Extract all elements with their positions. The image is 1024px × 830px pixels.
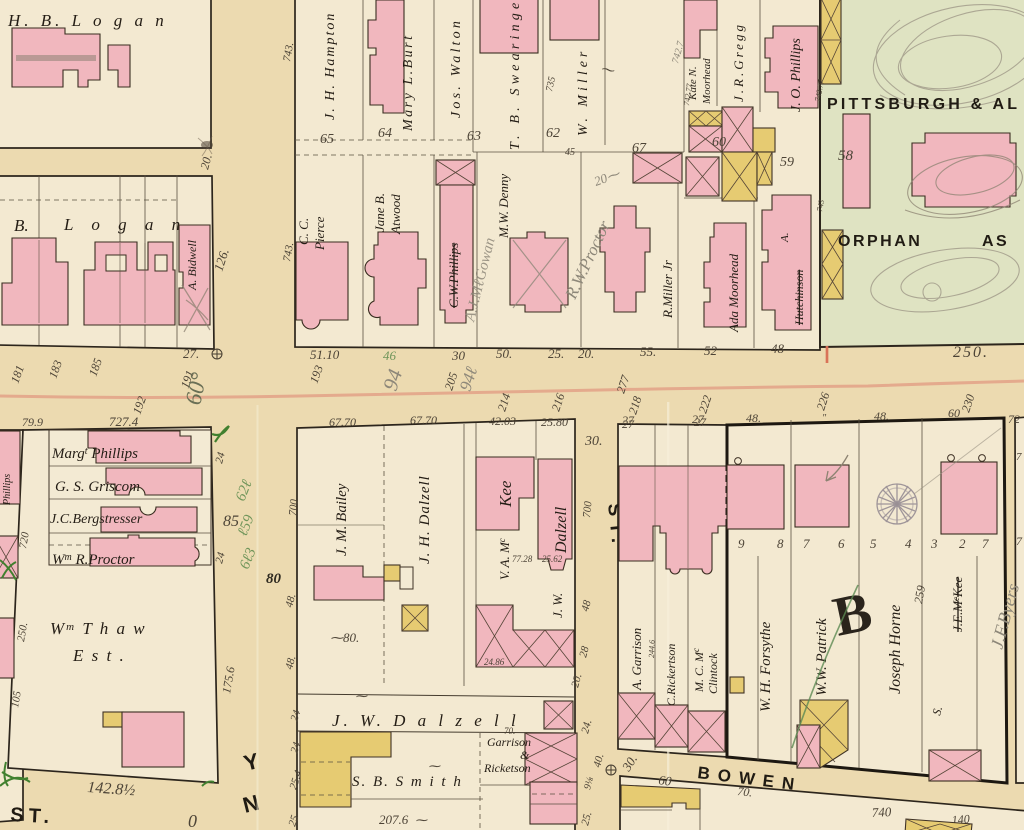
svg-text:Ricketson: Ricketson xyxy=(483,761,531,775)
svg-text:J.E.McKee: J.E.McKee xyxy=(950,577,965,632)
svg-text:5: 5 xyxy=(870,536,877,551)
svg-text:J. W. D a l z e l l: J. W. D a l z e l l xyxy=(332,711,520,730)
svg-text:77.28: 77.28 xyxy=(512,554,533,564)
svg-text:51.10: 51.10 xyxy=(310,347,340,362)
svg-text:⁓: ⁓ xyxy=(415,813,428,827)
svg-text:30: 30 xyxy=(451,348,466,363)
svg-text:Moorhead: Moorhead xyxy=(701,58,713,105)
svg-text:60: 60 xyxy=(712,135,726,150)
svg-text:2: 2 xyxy=(959,536,966,551)
svg-text:207.6: 207.6 xyxy=(379,812,409,827)
svg-text:L o g a n: L o g a n xyxy=(63,215,187,234)
svg-text:W. H. Forsythe: W. H. Forsythe xyxy=(758,621,774,712)
svg-text:J.C.Bergstresser: J.C.Bergstresser xyxy=(50,512,143,527)
svg-text:27.: 27. xyxy=(183,346,199,361)
svg-text:70.: 70. xyxy=(737,784,753,799)
svg-text:740: 740 xyxy=(871,804,892,820)
svg-text:Margt Phillips: Margt Phillips xyxy=(51,446,138,462)
svg-text:25.: 25. xyxy=(548,346,564,361)
svg-text:ORPHAN: ORPHAN xyxy=(838,233,922,250)
svg-text:Wm R.Proctor: Wm R.Proctor xyxy=(52,552,135,568)
svg-text:46: 46 xyxy=(383,348,397,363)
svg-text:7: 7 xyxy=(1016,451,1022,463)
svg-text:72: 72 xyxy=(1008,412,1020,426)
svg-text:142.8½: 142.8½ xyxy=(87,779,136,799)
svg-text:H. B. L o g a n: H. B. L o g a n xyxy=(7,11,168,30)
svg-text:59: 59 xyxy=(780,155,794,170)
svg-text:Hutchinson: Hutchinson xyxy=(792,270,806,326)
svg-text:50.: 50. xyxy=(496,346,512,361)
svg-text:Garrison: Garrison xyxy=(487,735,531,749)
svg-text:J. M. Bailey: J. M. Bailey xyxy=(334,483,350,556)
svg-text:&: & xyxy=(520,748,530,762)
svg-text:A.: A. xyxy=(779,233,791,243)
svg-text:7: 7 xyxy=(1016,534,1023,548)
svg-text:M. C. Mc: M. C. Mc xyxy=(691,648,706,693)
svg-text:700: 700 xyxy=(287,498,300,516)
svg-text:J. H. Dalzell: J. H. Dalzell xyxy=(417,475,433,564)
svg-text:J.R.Gregg: J.R.Gregg xyxy=(731,22,746,102)
svg-text:79.9: 79.9 xyxy=(22,415,43,429)
svg-text:C.Rickertson: C.Rickertson xyxy=(664,644,678,706)
svg-text:AS: AS xyxy=(982,233,1009,250)
svg-text:42.03: 42.03 xyxy=(489,414,516,428)
svg-text:⁓: ⁓ xyxy=(428,759,441,773)
svg-text:30.: 30. xyxy=(584,434,603,449)
svg-text:Joseph Horne: Joseph Horne xyxy=(887,605,904,694)
svg-text:Jos. Walton: Jos. Walton xyxy=(449,18,464,118)
svg-text:W.W. Patrick: W.W. Patrick xyxy=(814,618,830,696)
svg-text:80: 80 xyxy=(266,571,282,587)
svg-text:PITTSBURGH & AL: PITTSBURGH & AL xyxy=(827,96,1020,113)
svg-text:63: 63 xyxy=(467,129,481,144)
svg-text:45: 45 xyxy=(565,147,575,158)
svg-text:C. C.: C. C. xyxy=(296,218,311,245)
svg-text:Wm T h a w: Wm T h a w xyxy=(50,619,147,638)
svg-text:⁓: ⁓ xyxy=(355,689,368,703)
svg-text:7: 7 xyxy=(803,536,810,551)
svg-text:48: 48 xyxy=(771,341,785,356)
svg-text:W. Miller: W. Miller xyxy=(576,48,591,136)
svg-text:Clintock: Clintock xyxy=(706,653,720,694)
svg-text:J. O. Phillips: J. O. Phillips xyxy=(789,38,804,112)
svg-text:E s t .: E s t . xyxy=(72,646,126,665)
svg-text:0: 0 xyxy=(188,811,197,830)
svg-text:T. B. Swearinge: T. B. Swearinge xyxy=(508,0,523,150)
svg-text:27: 27 xyxy=(694,415,707,429)
svg-text:9: 9 xyxy=(738,536,745,551)
svg-text:Dalzell: Dalzell xyxy=(553,506,570,554)
svg-text:B.: B. xyxy=(14,216,29,235)
svg-text:⁓80.: ⁓80. xyxy=(330,630,359,645)
svg-text:M.W. Denny: M.W. Denny xyxy=(496,174,511,239)
svg-text:Jane B.: Jane B. xyxy=(372,193,387,232)
svg-text:250.: 250. xyxy=(953,344,989,361)
svg-text:C.W.Phillips: C.W.Phillips xyxy=(446,243,461,308)
svg-text:24.86: 24.86 xyxy=(484,657,505,667)
svg-text:7: 7 xyxy=(982,536,989,551)
svg-text:J. W.: J. W. xyxy=(550,593,565,618)
svg-text:60: 60 xyxy=(658,772,673,789)
svg-text:67.70: 67.70 xyxy=(410,413,437,427)
svg-text:27: 27 xyxy=(622,417,635,431)
svg-text:4: 4 xyxy=(905,536,912,551)
svg-text:J. H. Hampton: J. H. Hampton xyxy=(323,12,338,120)
svg-text:S. B. S m i t h: S. B. S m i t h xyxy=(352,774,463,790)
svg-text:V. A. Mc: V. A. Mc xyxy=(497,538,512,580)
svg-text:65: 65 xyxy=(320,132,334,147)
svg-text:62: 62 xyxy=(546,126,560,141)
svg-text:G. S. Griscom: G. S. Griscom xyxy=(55,479,140,495)
svg-text:58: 58 xyxy=(838,148,854,164)
svg-text:Atwood: Atwood xyxy=(388,194,403,235)
svg-text:Phillips: Phillips xyxy=(2,474,13,506)
svg-text:48.: 48. xyxy=(746,411,761,425)
svg-text:52: 52 xyxy=(704,343,718,358)
svg-text:3: 3 xyxy=(930,536,938,551)
svg-text:Mary L.Burt: Mary L.Burt xyxy=(401,34,416,133)
svg-text:64: 64 xyxy=(378,126,392,141)
svg-text:6: 6 xyxy=(838,536,845,551)
svg-text:25.80: 25.80 xyxy=(541,415,568,429)
svg-text:67.70: 67.70 xyxy=(329,415,356,429)
svg-text:244.6: 244.6 xyxy=(647,640,657,658)
svg-text:48.: 48. xyxy=(874,409,889,423)
svg-text:Kee: Kee xyxy=(496,480,515,508)
svg-text:20.: 20. xyxy=(578,346,594,361)
svg-text:R.Miller Jr: R.Miller Jr xyxy=(660,259,675,319)
svg-text:55.: 55. xyxy=(640,344,656,359)
svg-text:700: 700 xyxy=(581,500,594,518)
svg-text:A. Bidwell: A. Bidwell xyxy=(185,239,199,291)
svg-text:25.62: 25.62 xyxy=(542,554,563,564)
svg-text:727.4: 727.4 xyxy=(109,414,139,429)
svg-text:ST.: ST. xyxy=(10,804,55,828)
svg-text:A. Garrison: A. Garrison xyxy=(629,628,644,691)
svg-text:Ada Moorhead: Ada Moorhead xyxy=(726,253,741,333)
svg-text:8: 8 xyxy=(777,536,784,551)
svg-text:Pierce: Pierce xyxy=(312,216,327,251)
